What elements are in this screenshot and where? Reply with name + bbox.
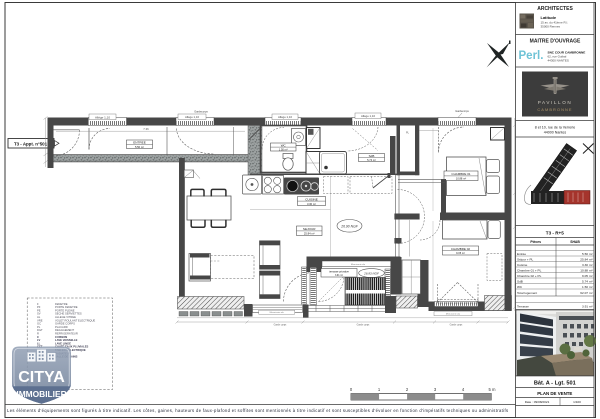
svg-text:WC: WC (281, 143, 287, 147)
svg-text:5.74 m²: 5.74 m² (367, 158, 376, 162)
svg-text:5.50 m²: 5.50 m² (582, 252, 593, 256)
svg-text:ARCHITECTES: ARCHITECTES (537, 6, 573, 12)
svg-text:Menuiserie alu: Menuiserie alu (351, 263, 366, 266)
svg-text:8 et 10, rue de la Verrerie: 8 et 10, rue de la Verrerie (535, 126, 576, 130)
svg-text:CHAMBRE 01: CHAMBRE 01 (451, 172, 471, 176)
svg-text:1.50 m²: 1.50 m² (279, 148, 288, 152)
svg-text:44000 Nantes: 44000 Nantes (544, 131, 567, 135)
svg-text:5.74 m²: 5.74 m² (582, 279, 593, 283)
svg-text:10.88 m²: 10.88 m² (456, 177, 466, 181)
svg-text:SHAB: SHAB (570, 240, 580, 244)
svg-text:9.05 m²: 9.05 m² (582, 274, 593, 278)
svg-text:Les éléments d'équipements son: Les éléments d'équipements sont figurés … (7, 408, 508, 413)
svg-text:Séjour + PL: Séjour + PL (517, 257, 534, 261)
svg-text:1/100: 1/100 (573, 400, 581, 404)
svg-text:Allège 1,10: Allège 1,10 (95, 115, 110, 119)
svg-text:26.90 NGF: 26.90 NGF (340, 224, 359, 228)
svg-text:PLAN DE VENTE: PLAN DE VENTE (537, 391, 572, 396)
svg-text:3.30 m²: 3.30 m² (582, 263, 593, 267)
svg-text:5 m: 5 m (489, 387, 496, 392)
svg-text:CITYA: CITYA (18, 369, 65, 386)
svg-text:IMMOBILIER: IMMOBILIER (16, 389, 66, 399)
svg-text:Date : 09/08/2021: Date : 09/08/2021 (525, 400, 550, 404)
svg-text:Chambre 02 + PL: Chambre 02 + PL (517, 274, 542, 278)
svg-text:7.36: 7.36 (143, 127, 149, 131)
svg-text:Menuiserie alu: Menuiserie alu (270, 311, 285, 314)
svg-text:3.30 m²: 3.30 m² (307, 202, 316, 206)
svg-text:ENTREE: ENTREE (133, 141, 146, 145)
svg-text:44300 NANTES: 44300 NANTES (548, 59, 569, 63)
svg-text:PAVILLON: PAVILLON (538, 100, 573, 105)
svg-text:WC: WC (517, 285, 523, 289)
svg-text:Allège 1,10: Allège 1,10 (185, 115, 199, 119)
svg-text:terrasse privative: terrasse privative (329, 269, 349, 273)
svg-text:Gardecorps: Gardecorps (194, 109, 208, 113)
svg-text:9.05 m²: 9.05 m² (456, 251, 465, 255)
svg-text:Gardecorps: Gardecorps (455, 109, 469, 113)
svg-text:Terrasse: Terrasse (517, 304, 529, 308)
svg-text:25.84 m²: 25.84 m² (304, 232, 315, 236)
svg-text:Cuisine: Cuisine (517, 263, 528, 267)
svg-text:T3 - Appt. n°501: T3 - Appt. n°501 (14, 141, 48, 146)
svg-text:5.50 m²: 5.50 m² (135, 145, 144, 149)
svg-text:Garde corps: Garde corps (450, 323, 463, 326)
svg-text:MAITRE D'OUVRAGE: MAITRE D'OUVRAGE (530, 39, 581, 45)
svg-text:1.50 m²: 1.50 m² (582, 285, 593, 289)
svg-text:Perl.: Perl. (519, 50, 544, 62)
svg-text:Allège 1,10: Allège 1,10 (278, 115, 292, 119)
svg-text:SEJOUR: SEJOUR (303, 227, 316, 231)
svg-text:Total logement: Total logement (517, 291, 537, 295)
svg-text:25.84 m²: 25.84 m² (580, 257, 592, 261)
svg-text:SdB: SdB (369, 154, 375, 158)
svg-text:Chambre 01 + PL: Chambre 01 + PL (517, 268, 542, 272)
svg-text:62.07 m²: 62.07 m² (580, 291, 592, 295)
svg-text:Pièces: Pièces (530, 240, 541, 244)
svg-text:Allège 1,10: Allège 1,10 (361, 114, 375, 118)
svg-text:Latitude: Latitude (541, 15, 557, 20)
svg-text:3.91 m²: 3.91 m² (582, 304, 593, 308)
svg-text:26.83 NGF: 26.83 NGF (363, 271, 379, 275)
svg-text:35000 Rennes: 35000 Rennes (541, 25, 561, 29)
svg-text:3.91 m²: 3.91 m² (335, 274, 343, 277)
svg-text:CHAMBRE 02: CHAMBRE 02 (451, 247, 471, 251)
svg-text:T3 - R+5: T3 - R+5 (546, 231, 564, 236)
svg-text:10.88 m²: 10.88 m² (580, 268, 592, 272)
svg-text:Menuiserie alu: Menuiserie alu (446, 313, 461, 316)
svg-text:CUISINE: CUISINE (305, 197, 318, 201)
svg-text:CAMBRONNE: CAMBRONNE (537, 107, 572, 112)
svg-text:Garde corps: Garde corps (357, 323, 370, 326)
svg-text:Garde corps: Garde corps (274, 323, 287, 326)
svg-text:Bât. A - Lgt. 501: Bât. A - Lgt. 501 (534, 381, 576, 387)
svg-text:SdB: SdB (517, 279, 523, 283)
svg-text:Entrée: Entrée (517, 252, 526, 256)
